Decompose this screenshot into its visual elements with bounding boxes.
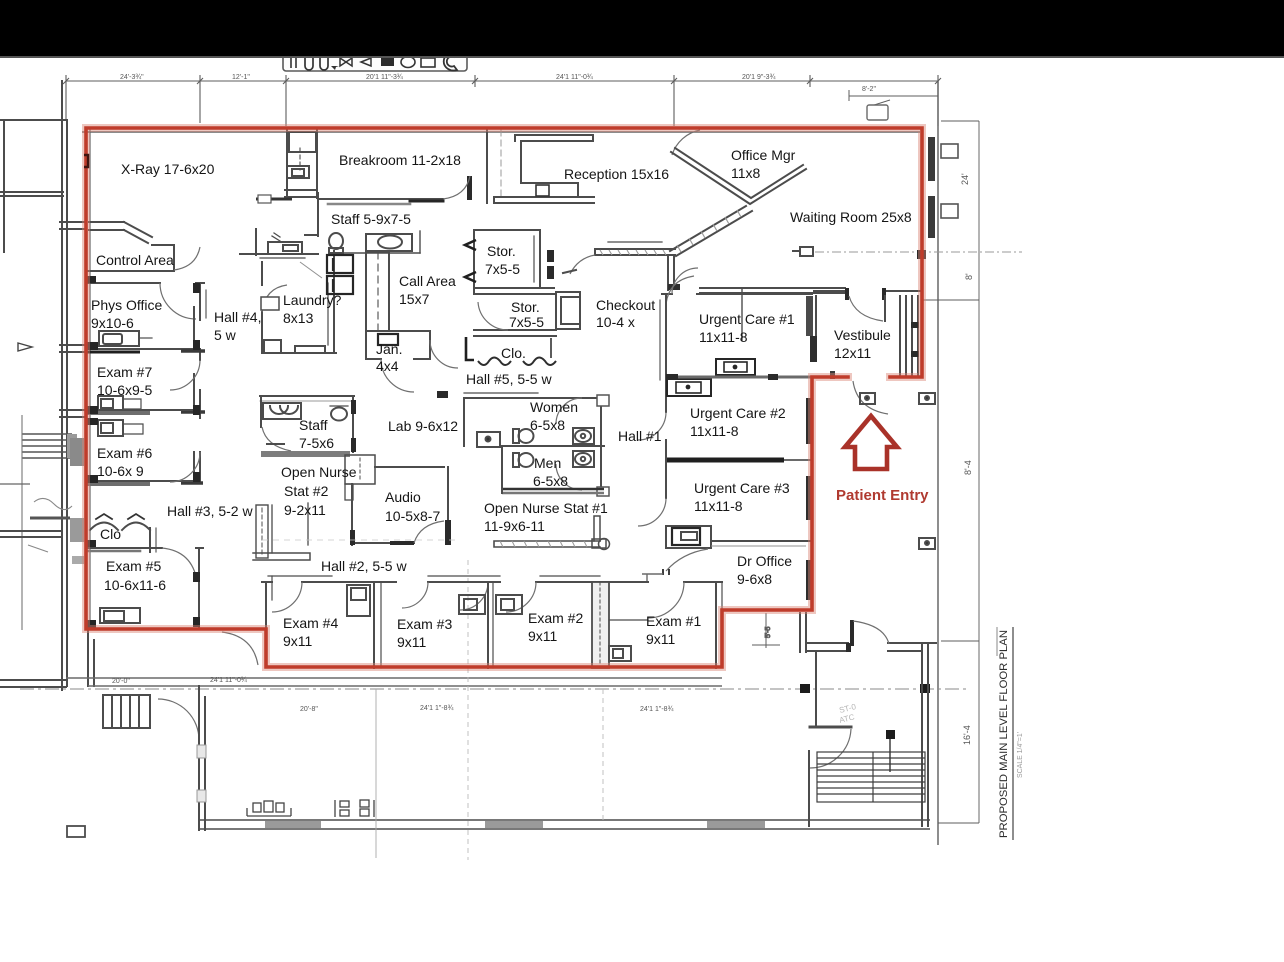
svg-text:20'-0": 20'-0"	[112, 678, 130, 685]
svg-text:Laundry?: Laundry?	[283, 292, 342, 308]
svg-text:PROPOSED MAIN LEVEL FLOOR PLAN: PROPOSED MAIN LEVEL FLOOR PLAN	[998, 630, 1010, 838]
svg-text:Women: Women	[530, 399, 578, 415]
svg-text:24'1 11"-0¾: 24'1 11"-0¾	[210, 677, 247, 684]
svg-text:8'-4: 8'-4	[963, 460, 973, 475]
svg-text:24'-3¾": 24'-3¾"	[120, 74, 144, 81]
svg-text:Office Mgr: Office Mgr	[731, 147, 796, 163]
svg-text:SCALE 1/4"=1': SCALE 1/4"=1'	[1017, 732, 1024, 778]
svg-text:20'1 11"-3¾: 20'1 11"-3¾	[366, 74, 403, 81]
svg-text:Dr Office: Dr Office	[737, 553, 792, 569]
svg-text:9-6x8: 9-6x8	[737, 571, 772, 587]
svg-text:Urgent Care #3: Urgent Care #3	[694, 480, 790, 496]
svg-text:11x11-8: 11x11-8	[699, 329, 748, 345]
svg-text:12x11: 12x11	[834, 345, 871, 361]
svg-text:Stat #2: Stat #2	[284, 483, 329, 499]
svg-text:Exam #1: Exam #1	[646, 613, 701, 629]
svg-text:11-9x6-11: 11-9x6-11	[484, 518, 545, 534]
svg-text:4x4: 4x4	[376, 358, 399, 374]
svg-text:Staff: Staff	[299, 417, 328, 433]
svg-text:11x8: 11x8	[731, 165, 761, 181]
svg-text:20'1 9"-3¾: 20'1 9"-3¾	[742, 74, 776, 81]
svg-text:8'-2": 8'-2"	[862, 86, 876, 93]
svg-text:Breakroom 11-2x18: Breakroom 11-2x18	[339, 152, 461, 168]
svg-text:7x5-5: 7x5-5	[509, 314, 544, 330]
svg-text:12'-1": 12'-1"	[232, 74, 250, 81]
svg-text:6-5x8: 6-5x8	[530, 417, 565, 433]
svg-text:Stor.: Stor.	[487, 243, 516, 259]
svg-text:Hall #4,: Hall #4,	[214, 309, 261, 325]
svg-text:20'-8": 20'-8"	[300, 706, 318, 713]
svg-text:Exam #7: Exam #7	[97, 364, 152, 380]
svg-text:Call Area: Call Area	[399, 273, 456, 289]
svg-text:Reception 15x16: Reception 15x16	[564, 166, 669, 182]
svg-text:10-5x8-7: 10-5x8-7	[385, 508, 440, 524]
svg-text:Hall #2, 5-5 w: Hall #2, 5-5 w	[321, 558, 407, 574]
svg-text:24'1 11"-0¾: 24'1 11"-0¾	[556, 74, 593, 81]
svg-text:Audio: Audio	[385, 489, 421, 505]
svg-text:5 w: 5 w	[214, 327, 237, 343]
svg-text:Exam #3: Exam #3	[397, 616, 452, 632]
svg-text:Hall #5, 5-5 w: Hall #5, 5-5 w	[466, 371, 552, 387]
svg-text:Jan.: Jan.	[376, 341, 402, 357]
svg-text:Hall #3, 5-2 w: Hall #3, 5-2 w	[167, 503, 253, 519]
svg-text:Urgent Care #1: Urgent Care #1	[699, 311, 795, 327]
svg-text:Waiting Room 25x8: Waiting Room 25x8	[790, 209, 912, 225]
svg-text:Urgent Care #2: Urgent Care #2	[690, 405, 786, 421]
svg-text:Staff 5-9x7-5: Staff 5-9x7-5	[331, 211, 411, 227]
svg-text:7x5-5: 7x5-5	[485, 261, 520, 277]
svg-text:11x11-8: 11x11-8	[694, 498, 743, 514]
svg-text:9x11: 9x11	[646, 631, 676, 647]
svg-text:9x11: 9x11	[397, 634, 427, 650]
svg-text:10-6x11-6: 10-6x11-6	[104, 577, 166, 593]
svg-text:Control Area: Control Area	[96, 252, 174, 268]
svg-text:Patient Entry: Patient Entry	[836, 487, 929, 504]
svg-text:Hall #1: Hall #1	[618, 428, 662, 444]
svg-text:8x13: 8x13	[283, 310, 314, 326]
svg-text:Clo: Clo	[100, 526, 121, 542]
svg-text:Exam #5: Exam #5	[106, 558, 161, 574]
svg-text:6-5x8: 6-5x8	[533, 473, 568, 489]
svg-text:Open Nurse: Open Nurse	[281, 464, 357, 480]
svg-text:11x11-8: 11x11-8	[690, 423, 739, 439]
svg-text:15x7: 15x7	[399, 291, 430, 307]
svg-text:Lab 9-6x12: Lab 9-6x12	[388, 418, 458, 434]
svg-text:Checkout: Checkout	[596, 297, 655, 313]
svg-text:9-2x11: 9-2x11	[284, 502, 326, 518]
svg-text:10-4 x: 10-4 x	[596, 314, 635, 330]
svg-text:Vestibule: Vestibule	[834, 327, 891, 343]
svg-text:X-Ray 17-6x20: X-Ray 17-6x20	[121, 161, 215, 177]
svg-text:10-6x 9: 10-6x 9	[97, 463, 144, 479]
svg-text:8': 8'	[964, 273, 974, 280]
svg-text:Clo.: Clo.	[501, 345, 526, 361]
svg-text:Phys Office: Phys Office	[91, 297, 163, 313]
svg-text:9x10-6: 9x10-6	[91, 315, 134, 331]
svg-text:9x11: 9x11	[283, 633, 313, 649]
svg-text:24': 24'	[960, 173, 970, 185]
svg-text:24'1 1"-8¾: 24'1 1"-8¾	[640, 706, 674, 713]
svg-text:10-6x9-5: 10-6x9-5	[97, 382, 152, 398]
svg-text:Exam #6: Exam #6	[97, 445, 152, 461]
svg-text:Exam #2: Exam #2	[528, 610, 583, 626]
svg-text:5'-5: 5'-5	[765, 626, 772, 638]
svg-text:9x11: 9x11	[528, 628, 558, 644]
svg-text:24'1 1"-8¾: 24'1 1"-8¾	[420, 705, 454, 712]
svg-text:Exam #4: Exam #4	[283, 615, 338, 631]
svg-text:Open Nurse Stat #1: Open Nurse Stat #1	[484, 500, 608, 516]
svg-text:Stor.: Stor.	[511, 299, 540, 315]
svg-text:7-5x6: 7-5x6	[299, 435, 334, 451]
svg-text:Men: Men	[534, 455, 561, 471]
svg-text:16'-4: 16'-4	[962, 725, 972, 745]
